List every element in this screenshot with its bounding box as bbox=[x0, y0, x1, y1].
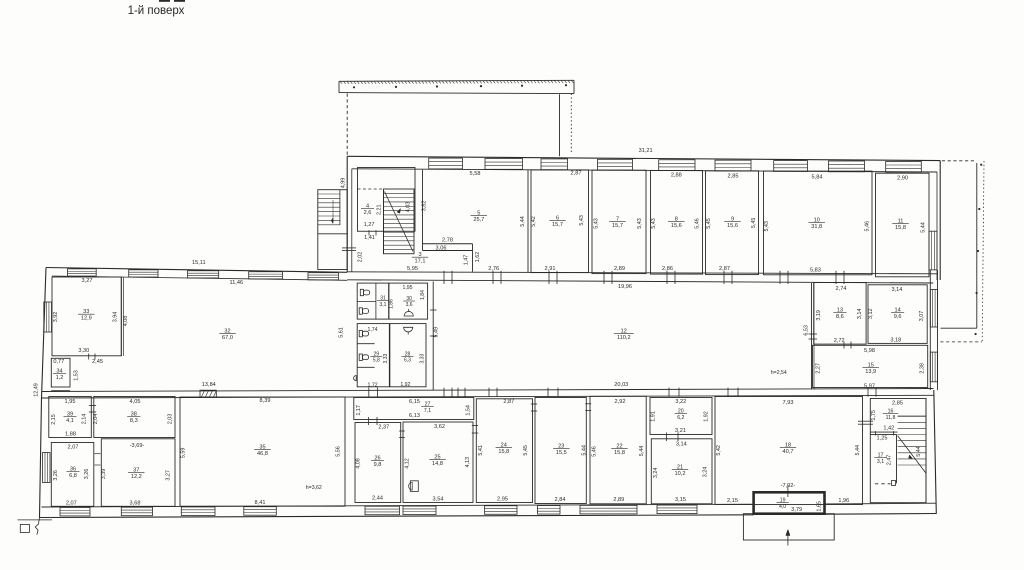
svg-text:2,95: 2,95 bbox=[497, 496, 508, 502]
svg-text:14,8: 14,8 bbox=[432, 461, 443, 467]
svg-text:5,97: 5,97 bbox=[864, 383, 875, 389]
svg-text:1,95: 1,95 bbox=[402, 285, 412, 291]
svg-text:1,86: 1,86 bbox=[389, 299, 395, 309]
svg-text:5,44: 5,44 bbox=[921, 222, 927, 233]
svg-text:15,6: 15,6 bbox=[671, 223, 682, 229]
svg-text:1,65: 1,65 bbox=[816, 501, 822, 512]
svg-text:2,72: 2,72 bbox=[834, 338, 845, 344]
svg-text:15,7: 15,7 bbox=[552, 222, 563, 228]
svg-text:1,41: 1,41 bbox=[364, 235, 375, 241]
svg-text:3,94: 3,94 bbox=[112, 312, 118, 323]
svg-text:3,15: 3,15 bbox=[675, 497, 686, 503]
svg-text:8,3: 8,3 bbox=[130, 418, 138, 424]
svg-text:2,86: 2,86 bbox=[662, 266, 673, 272]
svg-text:2,91: 2,91 bbox=[545, 266, 556, 272]
svg-text:5,42: 5,42 bbox=[716, 445, 722, 456]
svg-text:3,62: 3,62 bbox=[434, 424, 445, 430]
svg-text:2,45: 2,45 bbox=[92, 359, 103, 365]
svg-text:3,26: 3,26 bbox=[84, 469, 90, 480]
svg-text:2,89: 2,89 bbox=[614, 266, 625, 272]
svg-text:5,43: 5,43 bbox=[651, 218, 657, 229]
svg-text:4,08: 4,08 bbox=[123, 316, 129, 327]
svg-text:2,87: 2,87 bbox=[571, 171, 582, 177]
svg-text:5,44: 5,44 bbox=[582, 445, 588, 456]
svg-text:19,96: 19,96 bbox=[618, 284, 632, 290]
svg-text:11,46: 11,46 bbox=[230, 280, 244, 286]
svg-text:1,72: 1,72 bbox=[368, 382, 378, 388]
svg-text:2,03: 2,03 bbox=[167, 414, 173, 425]
svg-text:2,02: 2,02 bbox=[358, 252, 364, 263]
svg-text:1,84: 1,84 bbox=[420, 290, 426, 300]
svg-text:1-й поверх: 1-й поверх bbox=[128, 5, 185, 17]
svg-text:2,92: 2,92 bbox=[615, 399, 626, 405]
svg-text:5,45: 5,45 bbox=[523, 445, 529, 456]
svg-text:8,6: 8,6 bbox=[836, 314, 844, 320]
svg-text:3,14: 3,14 bbox=[676, 441, 687, 447]
svg-text:15,5: 15,5 bbox=[556, 450, 567, 456]
svg-text:13,84: 13,84 bbox=[202, 382, 216, 388]
svg-text:2,85: 2,85 bbox=[892, 401, 903, 407]
svg-text:1,42: 1,42 bbox=[883, 426, 894, 432]
svg-text:3,14: 3,14 bbox=[857, 309, 863, 320]
svg-text:4,13: 4,13 bbox=[465, 457, 471, 468]
svg-text:17,1: 17,1 bbox=[415, 258, 426, 264]
svg-text:12,49: 12,49 bbox=[33, 383, 39, 397]
svg-text:3,24: 3,24 bbox=[703, 467, 709, 478]
svg-text:1,47: 1,47 bbox=[464, 255, 470, 266]
svg-text:4,08: 4,08 bbox=[356, 458, 362, 469]
svg-text:4,1: 4,1 bbox=[66, 418, 74, 424]
svg-text:3,19: 3,19 bbox=[816, 310, 822, 321]
svg-text:7,93: 7,93 bbox=[783, 400, 794, 406]
svg-text:5,41: 5,41 bbox=[478, 445, 484, 456]
svg-text:3,33: 3,33 bbox=[420, 354, 426, 364]
svg-text:5,59: 5,59 bbox=[181, 448, 187, 459]
svg-text:5,45: 5,45 bbox=[706, 218, 712, 229]
svg-text:2,90: 2,90 bbox=[897, 175, 908, 181]
svg-text:3,33: 3,33 bbox=[383, 354, 389, 364]
svg-text:8,39: 8,39 bbox=[260, 398, 271, 404]
svg-text:3,54: 3,54 bbox=[433, 496, 444, 502]
svg-text:4,99: 4,99 bbox=[341, 178, 347, 189]
svg-text:3,21: 3,21 bbox=[675, 428, 686, 434]
svg-text:1,75: 1,75 bbox=[871, 410, 877, 421]
svg-text:1,88: 1,88 bbox=[65, 431, 76, 437]
svg-text:3,27: 3,27 bbox=[166, 470, 172, 481]
svg-text:1,25: 1,25 bbox=[877, 436, 888, 442]
svg-text:4,12: 4,12 bbox=[405, 458, 411, 469]
svg-text:3,07: 3,07 bbox=[919, 311, 925, 322]
svg-text:2,47: 2,47 bbox=[887, 455, 893, 466]
svg-text:h=2,54: h=2,54 bbox=[771, 370, 787, 376]
svg-text:4,05: 4,05 bbox=[130, 399, 141, 405]
svg-text:7,1: 7,1 bbox=[424, 408, 431, 414]
svg-text:2,04: 2,04 bbox=[93, 414, 99, 425]
svg-text:5,42: 5,42 bbox=[531, 216, 537, 227]
svg-text:1,91: 1,91 bbox=[651, 411, 657, 422]
svg-text:15,8: 15,8 bbox=[895, 225, 906, 231]
svg-text:-3,69-: -3,69- bbox=[130, 443, 145, 449]
svg-text:3,22: 3,22 bbox=[675, 399, 686, 405]
svg-text:3,30: 3,30 bbox=[78, 348, 89, 354]
svg-text:5,44: 5,44 bbox=[639, 446, 645, 457]
svg-text:5,44: 5,44 bbox=[855, 445, 861, 456]
svg-text:0,77: 0,77 bbox=[53, 359, 64, 365]
svg-text:2,87: 2,87 bbox=[719, 266, 730, 272]
svg-text:2,07: 2,07 bbox=[66, 501, 77, 507]
svg-text:2,87: 2,87 bbox=[503, 399, 514, 405]
svg-text:2,89: 2,89 bbox=[613, 497, 624, 503]
svg-text:2,37: 2,37 bbox=[378, 425, 389, 431]
svg-text:40,7: 40,7 bbox=[783, 449, 794, 455]
svg-text:1,27: 1,27 bbox=[364, 222, 375, 228]
svg-text:2,15: 2,15 bbox=[727, 498, 738, 504]
svg-text:2,14: 2,14 bbox=[82, 414, 88, 425]
svg-text:3,6: 3,6 bbox=[406, 302, 413, 308]
svg-text:2,21: 2,21 bbox=[377, 204, 383, 215]
svg-text:15,7: 15,7 bbox=[612, 223, 623, 229]
svg-text:5,83: 5,83 bbox=[810, 267, 821, 273]
svg-text:1,53: 1,53 bbox=[73, 370, 79, 381]
svg-text:4,03: 4,03 bbox=[406, 202, 412, 213]
svg-text:5,98: 5,98 bbox=[864, 348, 875, 354]
svg-text:5,58: 5,58 bbox=[470, 171, 481, 177]
svg-text:15,6: 15,6 bbox=[727, 223, 738, 229]
svg-text:9,6: 9,6 bbox=[894, 314, 902, 320]
svg-text:3,68: 3,68 bbox=[130, 501, 141, 507]
svg-text:5,43: 5,43 bbox=[593, 218, 599, 229]
svg-text:5,95: 5,95 bbox=[407, 266, 418, 272]
svg-text:5,84: 5,84 bbox=[812, 175, 823, 181]
svg-text:2,6: 2,6 bbox=[364, 210, 372, 216]
svg-text:5,46: 5,46 bbox=[694, 218, 700, 229]
svg-text:1,62: 1,62 bbox=[475, 252, 481, 263]
svg-text:110,2: 110,2 bbox=[617, 335, 631, 341]
svg-text:2,88: 2,88 bbox=[671, 173, 682, 179]
svg-text:6,53: 6,53 bbox=[804, 325, 810, 336]
svg-text:3,14: 3,14 bbox=[891, 287, 902, 293]
svg-text:-7,92-: -7,92- bbox=[781, 483, 796, 489]
svg-text:10,2: 10,2 bbox=[675, 471, 686, 477]
svg-text:5,8: 5,8 bbox=[373, 358, 380, 364]
svg-text:5,43: 5,43 bbox=[637, 218, 643, 229]
svg-text:5,43: 5,43 bbox=[764, 221, 770, 232]
svg-text:1,17: 1,17 bbox=[356, 405, 362, 416]
svg-text:2,27: 2,27 bbox=[816, 363, 822, 374]
svg-text:3,12: 3,12 bbox=[868, 309, 874, 320]
svg-text:3,1: 3,1 bbox=[877, 459, 884, 465]
svg-text:3,79: 3,79 bbox=[791, 507, 802, 513]
svg-text:1,92: 1,92 bbox=[400, 382, 410, 388]
svg-text:31,8: 31,8 bbox=[811, 224, 822, 230]
svg-text:3,18: 3,18 bbox=[890, 338, 901, 344]
svg-text:5,49: 5,49 bbox=[433, 327, 439, 338]
svg-text:67,0: 67,0 bbox=[222, 335, 233, 341]
svg-text:13,9: 13,9 bbox=[865, 369, 876, 375]
svg-text:1,2: 1,2 bbox=[56, 375, 64, 381]
svg-text:11,8: 11,8 bbox=[886, 415, 896, 421]
svg-text:5,46: 5,46 bbox=[865, 221, 871, 232]
svg-text:3,92: 3,92 bbox=[53, 312, 59, 323]
svg-text:12,2: 12,2 bbox=[131, 474, 142, 480]
svg-text:5,61: 5,61 bbox=[339, 327, 345, 338]
svg-text:3,1: 3,1 bbox=[380, 302, 387, 308]
svg-text:2,85: 2,85 bbox=[728, 174, 739, 180]
svg-text:31,21: 31,21 bbox=[639, 148, 653, 154]
svg-text:25,7: 25,7 bbox=[473, 217, 484, 223]
svg-text:6,13: 6,13 bbox=[409, 413, 420, 419]
svg-text:2,74: 2,74 bbox=[836, 286, 847, 292]
svg-text:9,8: 9,8 bbox=[374, 462, 382, 468]
svg-text:2,44: 2,44 bbox=[372, 496, 383, 502]
svg-text:5,43: 5,43 bbox=[579, 215, 585, 226]
svg-text:1,96: 1,96 bbox=[838, 498, 849, 504]
svg-text:3,27: 3,27 bbox=[82, 278, 93, 284]
svg-text:3,26: 3,26 bbox=[53, 470, 59, 481]
svg-text:2,15: 2,15 bbox=[51, 414, 57, 425]
svg-text:6,2: 6,2 bbox=[677, 415, 684, 421]
svg-text:2,84: 2,84 bbox=[555, 497, 566, 503]
svg-text:15,11: 15,11 bbox=[192, 260, 206, 266]
svg-text:6,15: 6,15 bbox=[409, 399, 420, 405]
svg-text:12,9: 12,9 bbox=[81, 315, 92, 321]
svg-text:3,06: 3,06 bbox=[436, 246, 447, 252]
svg-text:5,46: 5,46 bbox=[592, 446, 598, 457]
svg-text:2,76: 2,76 bbox=[488, 266, 499, 272]
svg-text:5,44: 5,44 bbox=[916, 446, 922, 457]
svg-text:15,8: 15,8 bbox=[498, 449, 509, 455]
svg-text:6,8: 6,8 bbox=[69, 473, 77, 479]
svg-text:5,56: 5,56 bbox=[336, 446, 342, 457]
svg-text:1,92: 1,92 bbox=[704, 411, 710, 422]
svg-text:20,03: 20,03 bbox=[614, 382, 628, 388]
svg-text:8,41: 8,41 bbox=[255, 500, 266, 506]
svg-text:h=3,62: h=3,62 bbox=[306, 485, 322, 491]
svg-text:3,39: 3,39 bbox=[101, 469, 107, 480]
svg-text:6,3: 6,3 bbox=[404, 358, 411, 364]
svg-text:3,24: 3,24 bbox=[653, 468, 659, 479]
svg-text:1,95: 1,95 bbox=[65, 399, 76, 405]
svg-text:4,0: 4,0 bbox=[779, 504, 786, 510]
svg-text:1,54: 1,54 bbox=[466, 405, 472, 416]
svg-text:5,44: 5,44 bbox=[520, 216, 526, 227]
svg-text:2,07: 2,07 bbox=[68, 445, 79, 451]
svg-text:46,8: 46,8 bbox=[257, 451, 268, 457]
svg-text:3,82: 3,82 bbox=[422, 201, 428, 212]
svg-text:2,78: 2,78 bbox=[442, 238, 453, 244]
svg-text:5,45: 5,45 bbox=[751, 218, 757, 229]
svg-text:15,8: 15,8 bbox=[614, 450, 625, 456]
svg-text:1,74: 1,74 bbox=[367, 327, 377, 333]
svg-text:2,38: 2,38 bbox=[919, 363, 925, 374]
